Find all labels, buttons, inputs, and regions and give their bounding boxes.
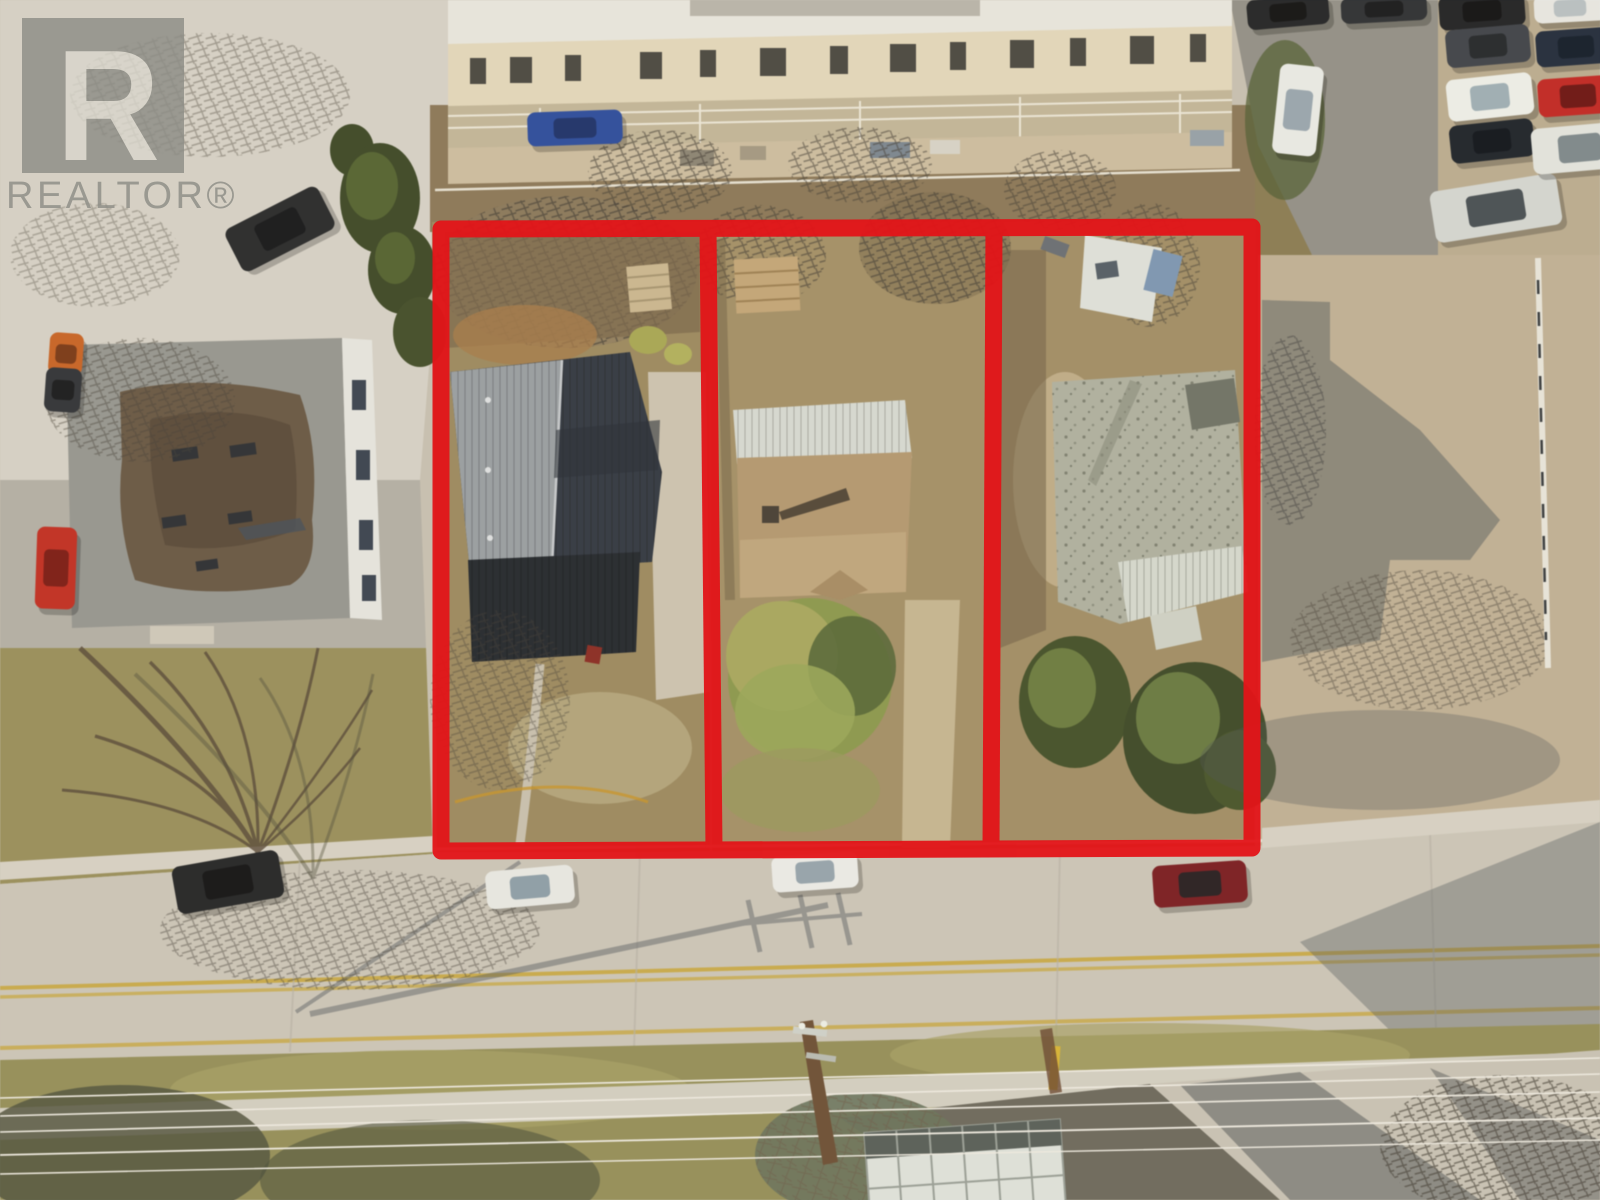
aerial-photo: R REALTOR® [0, 0, 1600, 1200]
tone-overlay [0, 0, 1600, 1200]
boundary-divider-1 [708, 229, 714, 849]
realtor-brand-text: REALTOR® [6, 175, 238, 217]
realtor-logo-letter: R [56, 18, 160, 194]
boundary-divider-2 [991, 227, 994, 848]
scene [0, 0, 1600, 1200]
